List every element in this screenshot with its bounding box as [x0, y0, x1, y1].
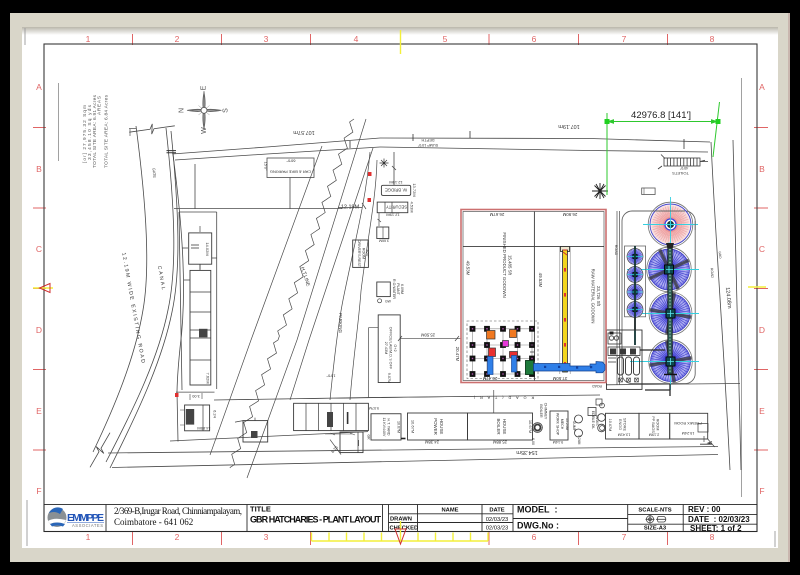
- svg-text:6: 6: [532, 34, 537, 44]
- svg-text:MODEL :: MODEL :: [517, 505, 558, 515]
- svg-text:14.85M: 14.85M: [197, 426, 210, 431]
- svg-text:5: 5: [443, 34, 448, 44]
- svg-text:B: B: [759, 164, 765, 174]
- svg-text:26.90M: 26.90M: [562, 212, 577, 217]
- svg-text:24.38M: 24.38M: [425, 440, 439, 445]
- svg-text:HOUSE: HOUSE: [502, 419, 507, 435]
- svg-text:EDIBLE OIL: EDIBLE OIL: [591, 411, 595, 430]
- svg-text:2: 2: [175, 532, 180, 542]
- svg-text:N: N: [179, 108, 186, 113]
- svg-text:TOTAL SITE AREA: 6.84 Acres: TOTAL SITE AREA: 6.84 Acres: [104, 94, 110, 168]
- svg-text:49.53M: 49.53M: [466, 261, 471, 276]
- svg-text:W: W: [201, 127, 208, 134]
- svg-text:40'0": 40'0": [679, 166, 688, 170]
- svg-text:2.19M: 2.19M: [649, 433, 660, 437]
- svg-text:3: 3: [264, 532, 269, 542]
- svg-text:WORK SHOP: WORK SHOP: [556, 413, 560, 436]
- svg-text:SUMP: SUMP: [572, 421, 576, 432]
- svg-text:DEPTH: DEPTH: [421, 138, 434, 142]
- svg-text:6: 6: [532, 532, 537, 542]
- svg-text:PREMIX ROOM: PREMIX ROOM: [674, 421, 701, 425]
- svg-text:G+2: G+2: [393, 344, 397, 351]
- svg-text:Coimbatore - 641 062: Coimbatore - 641 062: [114, 517, 193, 527]
- svg-text:PLANT: PLANT: [396, 283, 400, 295]
- svg-text:12.19M: 12.19M: [386, 213, 399, 218]
- svg-text:8: 8: [710, 34, 715, 44]
- svg-text:13.72M: 13.72M: [412, 183, 417, 196]
- svg-text:27.43M: 27.43M: [384, 342, 388, 355]
- svg-text:ASSOCIATES: ASSOCIATES: [72, 523, 103, 528]
- svg-text:SCALE-NTS: SCALE-NTS: [638, 508, 671, 514]
- svg-text:107.19m: 107.19m: [558, 123, 580, 129]
- svg-text:6.24: 6.24: [213, 410, 218, 419]
- svg-text:OFFICE/LAB/M.D.'s OFF: OFFICE/LAB/M.D.'s OFF: [389, 327, 393, 370]
- svg-text:10.67M: 10.67M: [528, 420, 533, 433]
- svg-text:SUMP 10'0": SUMP 10'0": [417, 143, 438, 147]
- svg-text:8: 8: [710, 532, 715, 542]
- svg-text:15,485 Sft: 15,485 Sft: [508, 255, 513, 276]
- svg-text:A: A: [36, 82, 42, 92]
- svg-text:F: F: [759, 486, 764, 496]
- svg-text:RAW MATERIAL GODOWN: RAW MATERIAL GODOWN: [591, 269, 596, 324]
- svg-text:37.50M: 37.50M: [552, 376, 567, 381]
- svg-text:10.67M: 10.67M: [397, 421, 401, 433]
- svg-text:1: 1: [86, 34, 91, 44]
- svg-text:9.14M: 9.14M: [553, 440, 564, 444]
- svg-text:GW: GW: [385, 300, 392, 304]
- svg-text:1: 1: [86, 532, 91, 542]
- svg-text:FINISHED PRODUCT GODOWN: FINISHED PRODUCT GODOWN: [502, 232, 507, 297]
- svg-text:W. BRIDGE: W. BRIDGE: [385, 188, 407, 193]
- svg-text:F: F: [36, 486, 41, 496]
- svg-text:MECH: MECH: [560, 419, 564, 430]
- svg-text:14.02M: 14.02M: [205, 242, 210, 255]
- svg-text:CHIMNEY: CHIMNEY: [544, 403, 548, 420]
- svg-text:R O A D ( T A R ): R O A D ( T A R ): [472, 396, 535, 400]
- svg-text:15'0": 15'0": [264, 162, 269, 171]
- svg-text:TOILETS: TOILETS: [672, 171, 689, 176]
- svg-text:42976.8 [141']: 42976.8 [141']: [631, 110, 691, 121]
- svg-text:ENGG: ENGG: [618, 419, 622, 430]
- svg-text:60'0": 60'0": [286, 159, 295, 164]
- svg-text:ROOM: ROOM: [656, 419, 660, 431]
- svg-text:10.67M: 10.67M: [411, 420, 416, 433]
- svg-text:25.88M: 25.88M: [493, 440, 507, 445]
- svg-text:H.T. YARD: H.T. YARD: [387, 418, 391, 435]
- svg-text:12.19M: 12.19M: [389, 180, 402, 185]
- svg-text:REV : 00: REV : 00: [688, 505, 721, 514]
- svg-text:ROAD: ROAD: [592, 384, 602, 388]
- svg-text:GRD: GRD: [718, 251, 723, 259]
- svg-text:BOILER: BOILER: [496, 418, 501, 434]
- svg-text:TANKS: TANKS: [595, 414, 599, 426]
- svg-text:HOUSE: HOUSE: [439, 419, 444, 435]
- svg-text:B: B: [36, 164, 42, 174]
- svg-text:7.62M: 7.62M: [206, 372, 211, 383]
- svg-text:E: E: [759, 406, 765, 416]
- svg-text:SHEET: 1 of 2: SHEET: 1 of 2: [690, 524, 742, 533]
- svg-text:7: 7: [622, 532, 627, 542]
- svg-text:PARKING: PARKING: [338, 313, 343, 333]
- svg-text:15.24M: 15.24M: [565, 418, 569, 430]
- svg-text:DATE : 02/03/23: DATE : 02/03/23: [688, 515, 750, 524]
- svg-text:DATE: DATE: [489, 508, 504, 514]
- svg-text:6.09M: 6.09M: [400, 284, 404, 294]
- svg-text:26.67M: 26.67M: [489, 212, 504, 217]
- svg-text:10.67M: 10.67M: [608, 419, 612, 432]
- svg-text:7: 7: [622, 34, 627, 44]
- svg-text:4.53M: 4.53M: [410, 201, 415, 212]
- svg-text:15.24M: 15.24M: [682, 431, 695, 435]
- svg-text:BOILER: BOILER: [539, 404, 543, 418]
- svg-text:11 KV/440V: 11 KV/440V: [382, 418, 386, 438]
- svg-text:C: C: [759, 244, 765, 254]
- svg-text:6.00: 6.00: [531, 438, 535, 445]
- svg-text:4: 4: [354, 34, 359, 44]
- svg-text:5.24M: 5.24M: [577, 435, 581, 445]
- svg-text:107.57m: 107.57m: [293, 129, 315, 135]
- svg-text:D: D: [759, 325, 765, 335]
- svg-text:POWER: POWER: [433, 418, 438, 435]
- svg-text:S: S: [223, 108, 230, 113]
- svg-text:02/03/23: 02/03/23: [486, 517, 509, 523]
- svg-text:ROAD: ROAD: [614, 245, 618, 256]
- svg-text:D: D: [36, 325, 42, 335]
- svg-text:DWG.No :: DWG.No :: [517, 521, 559, 531]
- svg-text:ROAD: ROAD: [710, 268, 715, 279]
- svg-text:3: 3: [264, 34, 269, 44]
- svg-text:SECURITY: SECURITY: [386, 205, 407, 210]
- svg-text:A: A: [759, 82, 765, 92]
- svg-text:20.47M: 20.47M: [455, 347, 460, 362]
- svg-text:SIZE-A3: SIZE-A3: [644, 526, 667, 532]
- svg-text:3.66M: 3.66M: [379, 239, 389, 243]
- svg-text:C: C: [36, 244, 42, 254]
- svg-text:13.41M: 13.41M: [618, 433, 631, 437]
- svg-text:AREAS: AREAS: [97, 96, 103, 115]
- svg-text:TITLE: TITLE: [250, 505, 271, 514]
- svg-text:GBR HATCHARIES - PLANT LAYOUT: GBR HATCHARIES - PLANT LAYOUT: [250, 515, 382, 525]
- svg-text:23,726 Sft: 23,726 Sft: [596, 286, 601, 307]
- svg-text:NAME: NAME: [441, 508, 458, 514]
- svg-text:40'0": 40'0": [366, 250, 370, 259]
- svg-text:CHECKED: CHECKED: [390, 525, 419, 531]
- svg-text:PP BAGS: PP BAGS: [651, 416, 655, 433]
- svg-text:DRIVER'S REST: DRIVER'S REST: [357, 240, 361, 268]
- svg-text:E: E: [36, 406, 42, 416]
- svg-text:GR: GR: [367, 435, 371, 441]
- svg-text:ROOM: ROOM: [362, 248, 366, 259]
- svg-text:25.50M: 25.50M: [421, 333, 435, 338]
- svg-text:CAR & BIKE PARKING: CAR & BIKE PARKING: [270, 170, 311, 175]
- svg-text:9.07M: 9.07M: [387, 373, 391, 384]
- svg-text:154.35m: 154.35m: [516, 449, 538, 455]
- svg-text:3.00: 3.00: [192, 394, 199, 398]
- svg-text:9.07M: 9.07M: [369, 406, 379, 410]
- svg-text:STORE: STORE: [623, 418, 627, 431]
- svg-text:10'0": 10'0": [326, 374, 335, 379]
- svg-text:49.53M: 49.53M: [538, 273, 543, 288]
- svg-text:R.O.WATER: R.O.WATER: [392, 279, 396, 299]
- svg-text:2: 2: [175, 34, 180, 44]
- svg-text:2/369-B,Irugar Road, Chinniamp: 2/369-B,Irugar Road, Chinniampalayam,: [114, 506, 242, 516]
- svg-text:E: E: [201, 85, 208, 90]
- svg-text:02/03/23: 02/03/23: [486, 526, 509, 532]
